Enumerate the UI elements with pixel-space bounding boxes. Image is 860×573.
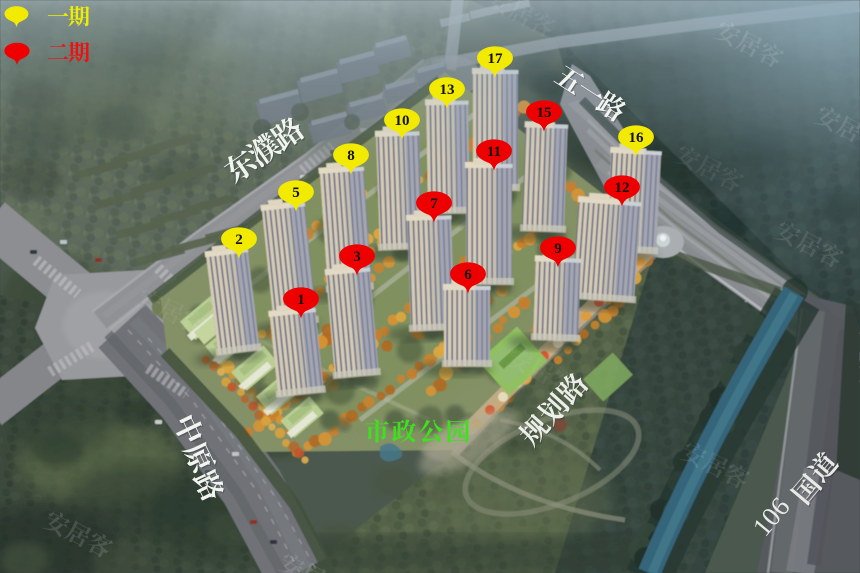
svg-text:5: 5	[292, 185, 300, 201]
svg-text:6: 6	[464, 267, 472, 283]
svg-text:13: 13	[440, 82, 455, 98]
svg-text:8: 8	[347, 148, 355, 164]
svg-text:3: 3	[353, 249, 361, 265]
svg-text:9: 9	[554, 241, 562, 257]
svg-text:7: 7	[430, 196, 438, 212]
svg-text:1: 1	[297, 292, 305, 308]
svg-text:12: 12	[615, 180, 630, 196]
svg-text:2: 2	[235, 232, 243, 248]
svg-text:11: 11	[487, 144, 501, 160]
svg-text:10: 10	[395, 113, 410, 129]
svg-text:16: 16	[629, 130, 645, 146]
svg-text:15: 15	[537, 105, 552, 121]
svg-text:17: 17	[488, 51, 504, 67]
